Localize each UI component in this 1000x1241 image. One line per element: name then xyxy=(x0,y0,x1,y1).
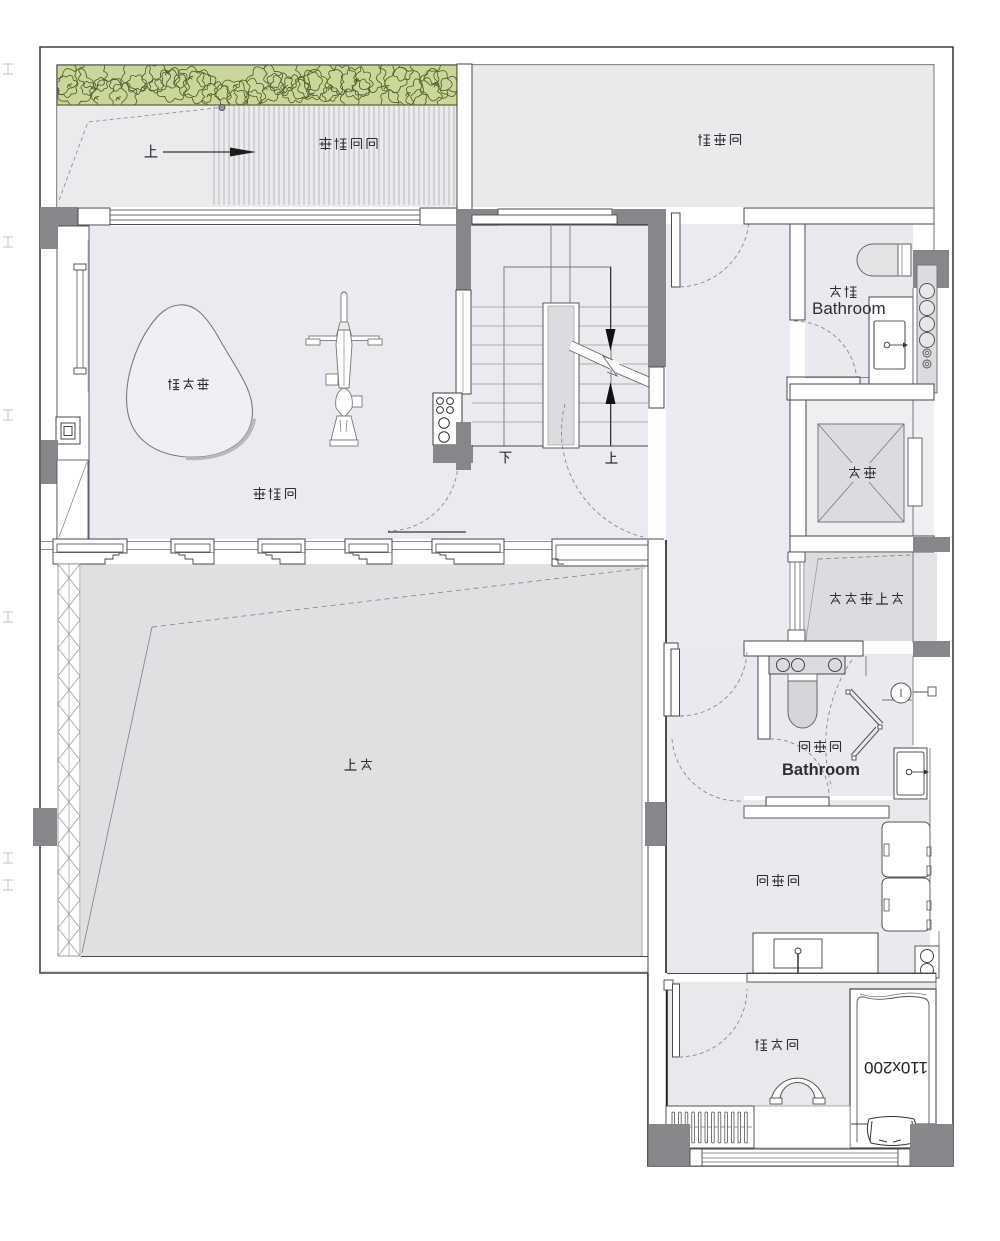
svg-text:110x200: 110x200 xyxy=(864,1058,928,1077)
svg-text:Bathroom: Bathroom xyxy=(782,761,860,779)
svg-text:Bathroom: Bathroom xyxy=(812,299,886,318)
